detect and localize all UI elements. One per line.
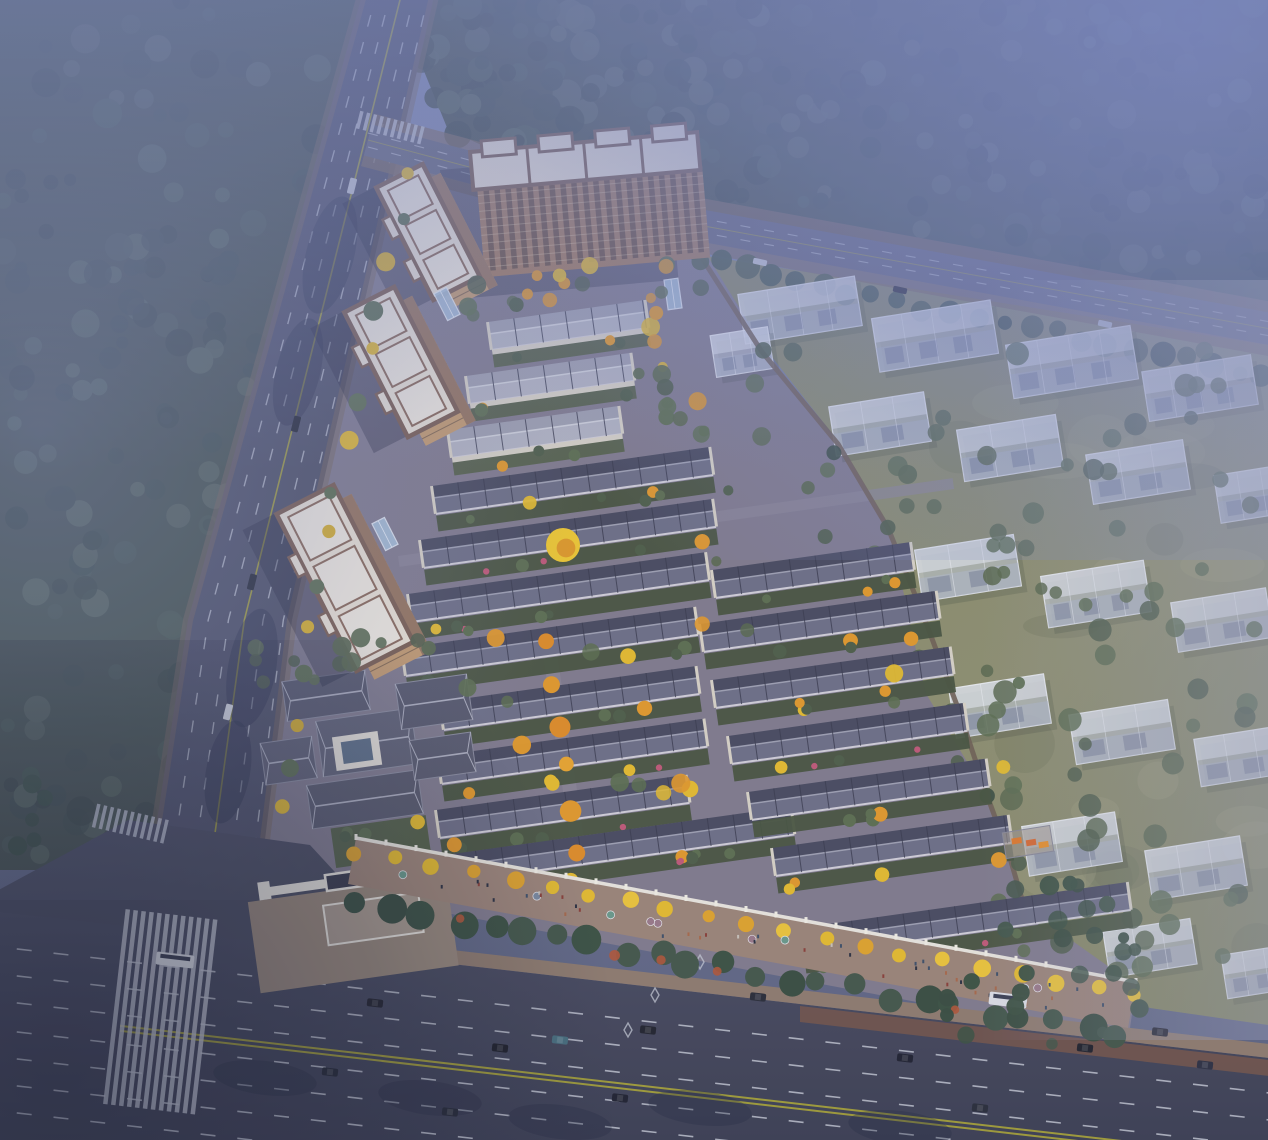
atmosphere [0,0,1268,1140]
aerial-masterplan-rendering: Aerial dusk rendering of a residential d… [0,0,1268,1140]
scene-svg: Aerial dusk rendering of a residential d… [0,0,1268,1140]
